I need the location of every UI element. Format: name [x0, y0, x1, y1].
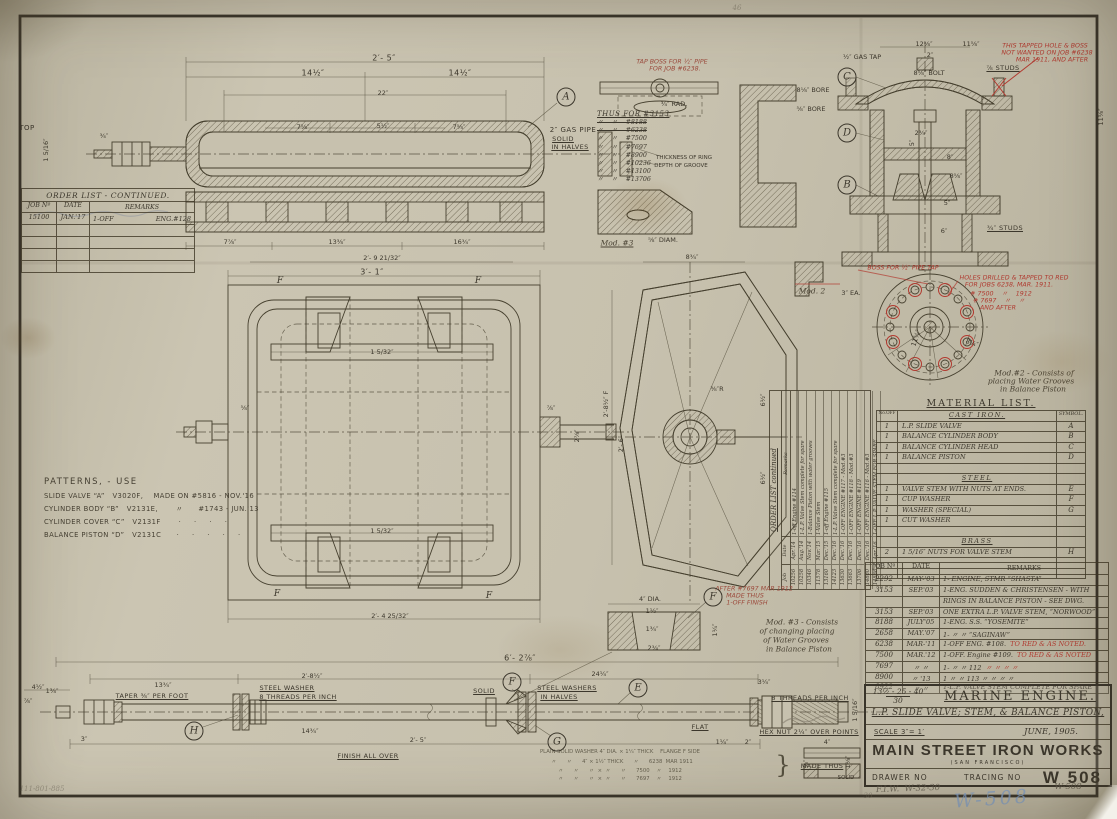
- drawing-annotation: 1-OFF FINISH: [726, 600, 767, 607]
- drawing-annotation: # 7697 〃 〃: [973, 296, 1025, 305]
- mod2-detail-label: Mod. 2: [799, 287, 826, 296]
- drawing-annotation: 2⅞″: [573, 430, 581, 443]
- drawing-annotation: 7⅝″: [453, 123, 466, 131]
- drawing-annotation: IN HALVES: [551, 143, 588, 151]
- drawing-annotation: MAR 1911, AND AFTER: [1016, 57, 1088, 64]
- drawing-annotation: 7⅝″: [297, 123, 310, 131]
- drawing-annotation: 1 5/16″: [851, 698, 859, 721]
- drawing-annotation: ⅞″: [24, 697, 33, 705]
- drawing-annotation: F: [274, 589, 280, 599]
- drawing-annotation: 8⅝″ BOLT: [913, 69, 944, 77]
- washer-note-line: PLAIN SOLID WASHER 4″ DIA. × 1¼″ THICK F…: [540, 749, 700, 755]
- drawing-annotation: 3″ EA.: [841, 289, 860, 297]
- drawing-annotation: 1 5/16″: [42, 138, 50, 161]
- after-7697-note: AFTER #7697 MAR 1912: [715, 586, 793, 593]
- mod3-note: Mod. #3 - Consists: [766, 618, 838, 627]
- ref-letter-E: E: [629, 679, 648, 698]
- drawing-annotation: SOLID: [473, 687, 495, 695]
- pencil-catalog: 111-801-885: [20, 785, 65, 793]
- crayon-w508: W-508: [953, 785, 1030, 812]
- ref-letter-D: D: [838, 124, 857, 143]
- drawing-annotation: 3″: [81, 735, 88, 743]
- drawing-annotation: IN HALVES: [540, 693, 577, 701]
- drawing-annotation: ⅞ STUDS: [986, 64, 1019, 72]
- drawing-annotation: ¾″ RAD.: [661, 100, 688, 108]
- drawing-annotation: FLAT: [691, 723, 708, 731]
- drawing-annotation: F: [277, 276, 283, 286]
- drawing-annotation: 1 5/32″: [370, 527, 393, 535]
- drawing-annotation: 11⅝″: [963, 40, 980, 48]
- drawing-annotation: 8 THREADS PER INCH: [771, 694, 848, 702]
- drawing-annotation: HEX NUT 2¼″ OVER POINTS: [759, 728, 858, 736]
- drawing-annotation: ⅜″R: [710, 385, 723, 393]
- drawing-annotation: 2′- 4 25/32″: [371, 612, 408, 620]
- red-note-boss: BOSS FOR ½″ PIPE TAP: [867, 265, 938, 272]
- pencil-mark-46: 46: [733, 4, 742, 12]
- drawing-annotation: 3′- 1″: [360, 268, 383, 277]
- drawing-annotation: 8⅝″: [950, 172, 963, 180]
- drawing-annotation: SOLID: [838, 775, 855, 781]
- drawing-annotation: 2¾″: [648, 644, 661, 652]
- drawing-annotation: 6″: [941, 227, 948, 235]
- drawing-annotation: 1½″: [646, 607, 659, 615]
- drawing-annotation: 8¼″: [965, 337, 980, 349]
- drawing-annotation: 7⅞″: [224, 238, 237, 246]
- drawing-annotation: 6½″: [759, 472, 767, 485]
- drawing-annotation: 2″: [745, 738, 752, 746]
- ref-letter-G: G: [548, 733, 567, 752]
- drawing-annotation: }: [775, 751, 790, 779]
- ref-letter-B: B: [838, 176, 857, 195]
- drawing-annotation: F: [486, 591, 492, 601]
- drawing-annotation: 2′- 9 21/32″: [363, 254, 400, 262]
- drawing-annotation: 4″: [824, 738, 831, 746]
- drawing-annotation: 2′- 6″: [617, 436, 625, 453]
- top-view-label: TOP: [19, 124, 35, 132]
- drawing-annotation: 1 5/32″: [370, 348, 393, 356]
- drawing-annotation: ⅝″ BORE: [797, 105, 826, 113]
- drawing-annotation: 6½″: [759, 394, 767, 407]
- annotations-layer: 46TOP1 5/16″¾″2′- 5″14½″14½″22″7⅝″5½″7⅝″…: [0, 0, 1117, 819]
- red-note-holes: HOLES DRILLED & TAPPED TO RED: [959, 275, 1068, 282]
- drawing-annotation: 22″: [378, 89, 389, 97]
- drawing-annotation: ½″ GAS TAP: [843, 53, 881, 61]
- drawing-annotation: 1¼″: [716, 738, 729, 746]
- drawing-annotation: DEPTH OF GROOVE: [654, 163, 707, 169]
- drawing-annotation: 1⅜″: [46, 687, 59, 695]
- drawing-annotation: 2′-8½″ F: [602, 391, 610, 418]
- drawing-annotation: 14½″: [449, 69, 472, 78]
- drawing-annotation: 5½″: [377, 122, 390, 130]
- drawing-annotation: TAPER ⅜″ PER FOOT: [116, 692, 189, 700]
- drawing-annotation: STEEL WASHER: [260, 684, 315, 692]
- drawing-annotation: ¾″ STUDS: [987, 224, 1023, 232]
- drawing-annotation: 6′- 2⅞″: [504, 654, 536, 663]
- drawing-annotation: ⅞″: [547, 404, 556, 412]
- drawing-annotation: SOLID: [552, 135, 574, 143]
- drawing-annotation: 5″: [908, 140, 916, 147]
- drawing-annotation: 13⅜″: [329, 238, 346, 246]
- drawing-annotation: 2″: [927, 51, 934, 59]
- drawing-annotation: 1¾″: [646, 625, 659, 633]
- drawing-annotation: 16¾″: [454, 238, 471, 246]
- drawing-annotation: 4½″: [32, 683, 45, 691]
- drawing-annotation: 8¾″: [686, 253, 699, 261]
- drawing-annotation: 〃 〃 〃 × 〃 〃 7500 〃 1912: [558, 766, 682, 774]
- drawing-annotation: FOR JOB #6238.: [649, 66, 700, 73]
- drawing-annotation: STEEL WASHERS: [537, 684, 596, 692]
- drawing-annotation: in Balance Piston: [766, 645, 832, 654]
- drawing-annotation: 〃 〃 4″ × 1½″ THICK 〃 6238 MAR 1911: [551, 757, 692, 765]
- drawing-annotation: ⅝″: [241, 404, 250, 412]
- drawing-annotation: in Balance Piston: [1000, 385, 1066, 394]
- drawing-annotation: 2′- 5″: [410, 736, 427, 744]
- tap-boss-note: TAP BOSS FOR ½″ PIPE: [636, 59, 707, 66]
- drawing-annotation: 24¼″: [592, 670, 609, 678]
- drawing-annotation: 11⅝″: [910, 329, 923, 348]
- drawing-annotation: 2′-8½″: [302, 672, 323, 680]
- drawing-annotation: 3¼″: [758, 678, 771, 686]
- drawing-annotation: 13¾″: [155, 681, 172, 689]
- ref-letter-F2: F: [704, 588, 723, 607]
- mod3-detail-label: Mod. #3: [601, 239, 634, 248]
- drawing-annotation: 2¾″: [915, 129, 928, 137]
- drawing-annotation: 1¼″: [711, 624, 719, 637]
- drawing-annotation: 5″: [944, 199, 951, 207]
- ref-letter-F: F: [503, 673, 522, 692]
- drawing-annotation: 14¾″: [302, 727, 319, 735]
- drawing-annotation: NOT WANTED ON JOB #6238: [1001, 50, 1092, 57]
- drawing-annotation: ¾″: [100, 132, 109, 140]
- ref-letter-C: C: [838, 68, 857, 87]
- ref-letter-A: A: [557, 88, 576, 107]
- drawing-annotation: F: [475, 276, 481, 286]
- ref-letter-H: H: [185, 722, 204, 741]
- finish-note: FINISH ALL OVER: [337, 752, 398, 760]
- drawing-annotation: 11⅝″: [1097, 109, 1105, 126]
- paper-corner: [1059, 785, 1117, 819]
- drawing-annotation: 2′- 5″: [372, 54, 395, 63]
- drawing-annotation: 〃 〃 〃 × 〃 〃 7697 〃 1912: [558, 774, 682, 782]
- drawing-annotation: 30: [864, 792, 873, 800]
- drawing-annotation: of changing placing: [759, 627, 834, 636]
- drawing-annotation: THICKNESS OF RING: [656, 155, 712, 161]
- drawing-annotation: 8 THREADS PER INCH: [259, 693, 336, 701]
- red-note-tapped-hole: THIS TAPPED HOLE & BOSS: [1002, 43, 1088, 50]
- drawing-annotation: of Water Grooves: [763, 636, 829, 645]
- drawing-annotation: 1⅛″: [844, 756, 852, 769]
- pencil-fiw: F.I.W. W-32-30: [876, 783, 940, 795]
- drawing-annotation: FOR JOBS 6238, MAR. 1911.: [965, 282, 1053, 289]
- drawing-annotation: 14½″: [302, 69, 325, 78]
- gas-pipe-label: 2″ GAS PIPE: [550, 126, 597, 134]
- drawing-annotation: AND AFTER: [980, 305, 1016, 312]
- drawing-sheet: ORDER LIST - CONTINUED. JOB NºDATEREMARK…: [0, 0, 1117, 819]
- drawing-annotation: 12⅝″: [916, 40, 933, 48]
- drawing-annotation: ⅞″: [802, 760, 810, 769]
- drawing-annotation: 8″: [947, 153, 954, 161]
- drawing-annotation: 4″ DIA.: [639, 595, 661, 603]
- drawing-annotation: MADE THUS: [726, 593, 764, 600]
- drawing-annotation: ⅝″ DIAM.: [648, 236, 678, 244]
- drawing-annotation: 8⅛″ BORE: [796, 86, 829, 94]
